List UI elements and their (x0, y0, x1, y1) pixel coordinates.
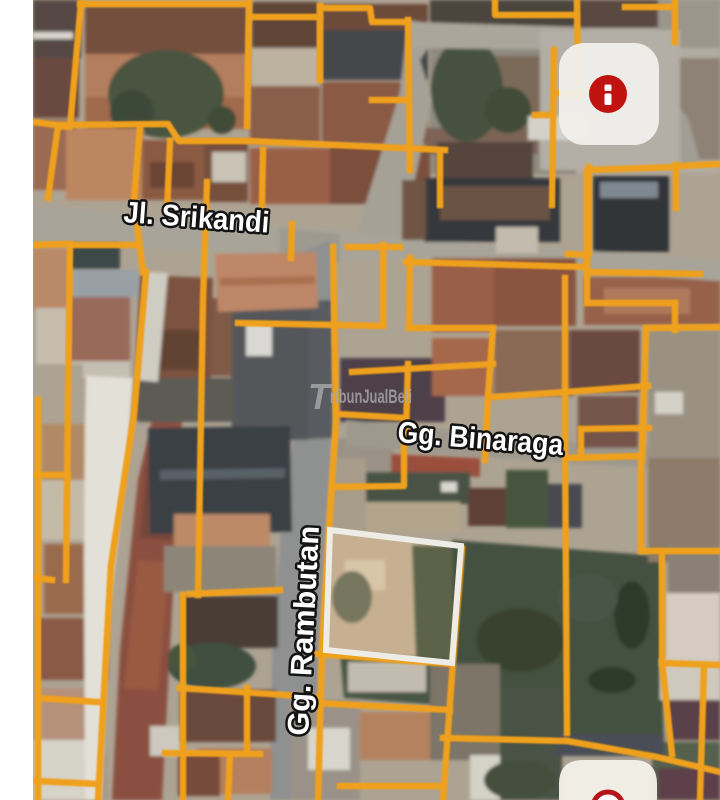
svg-text:ribunJualBeli: ribunJualBeli (330, 387, 412, 408)
